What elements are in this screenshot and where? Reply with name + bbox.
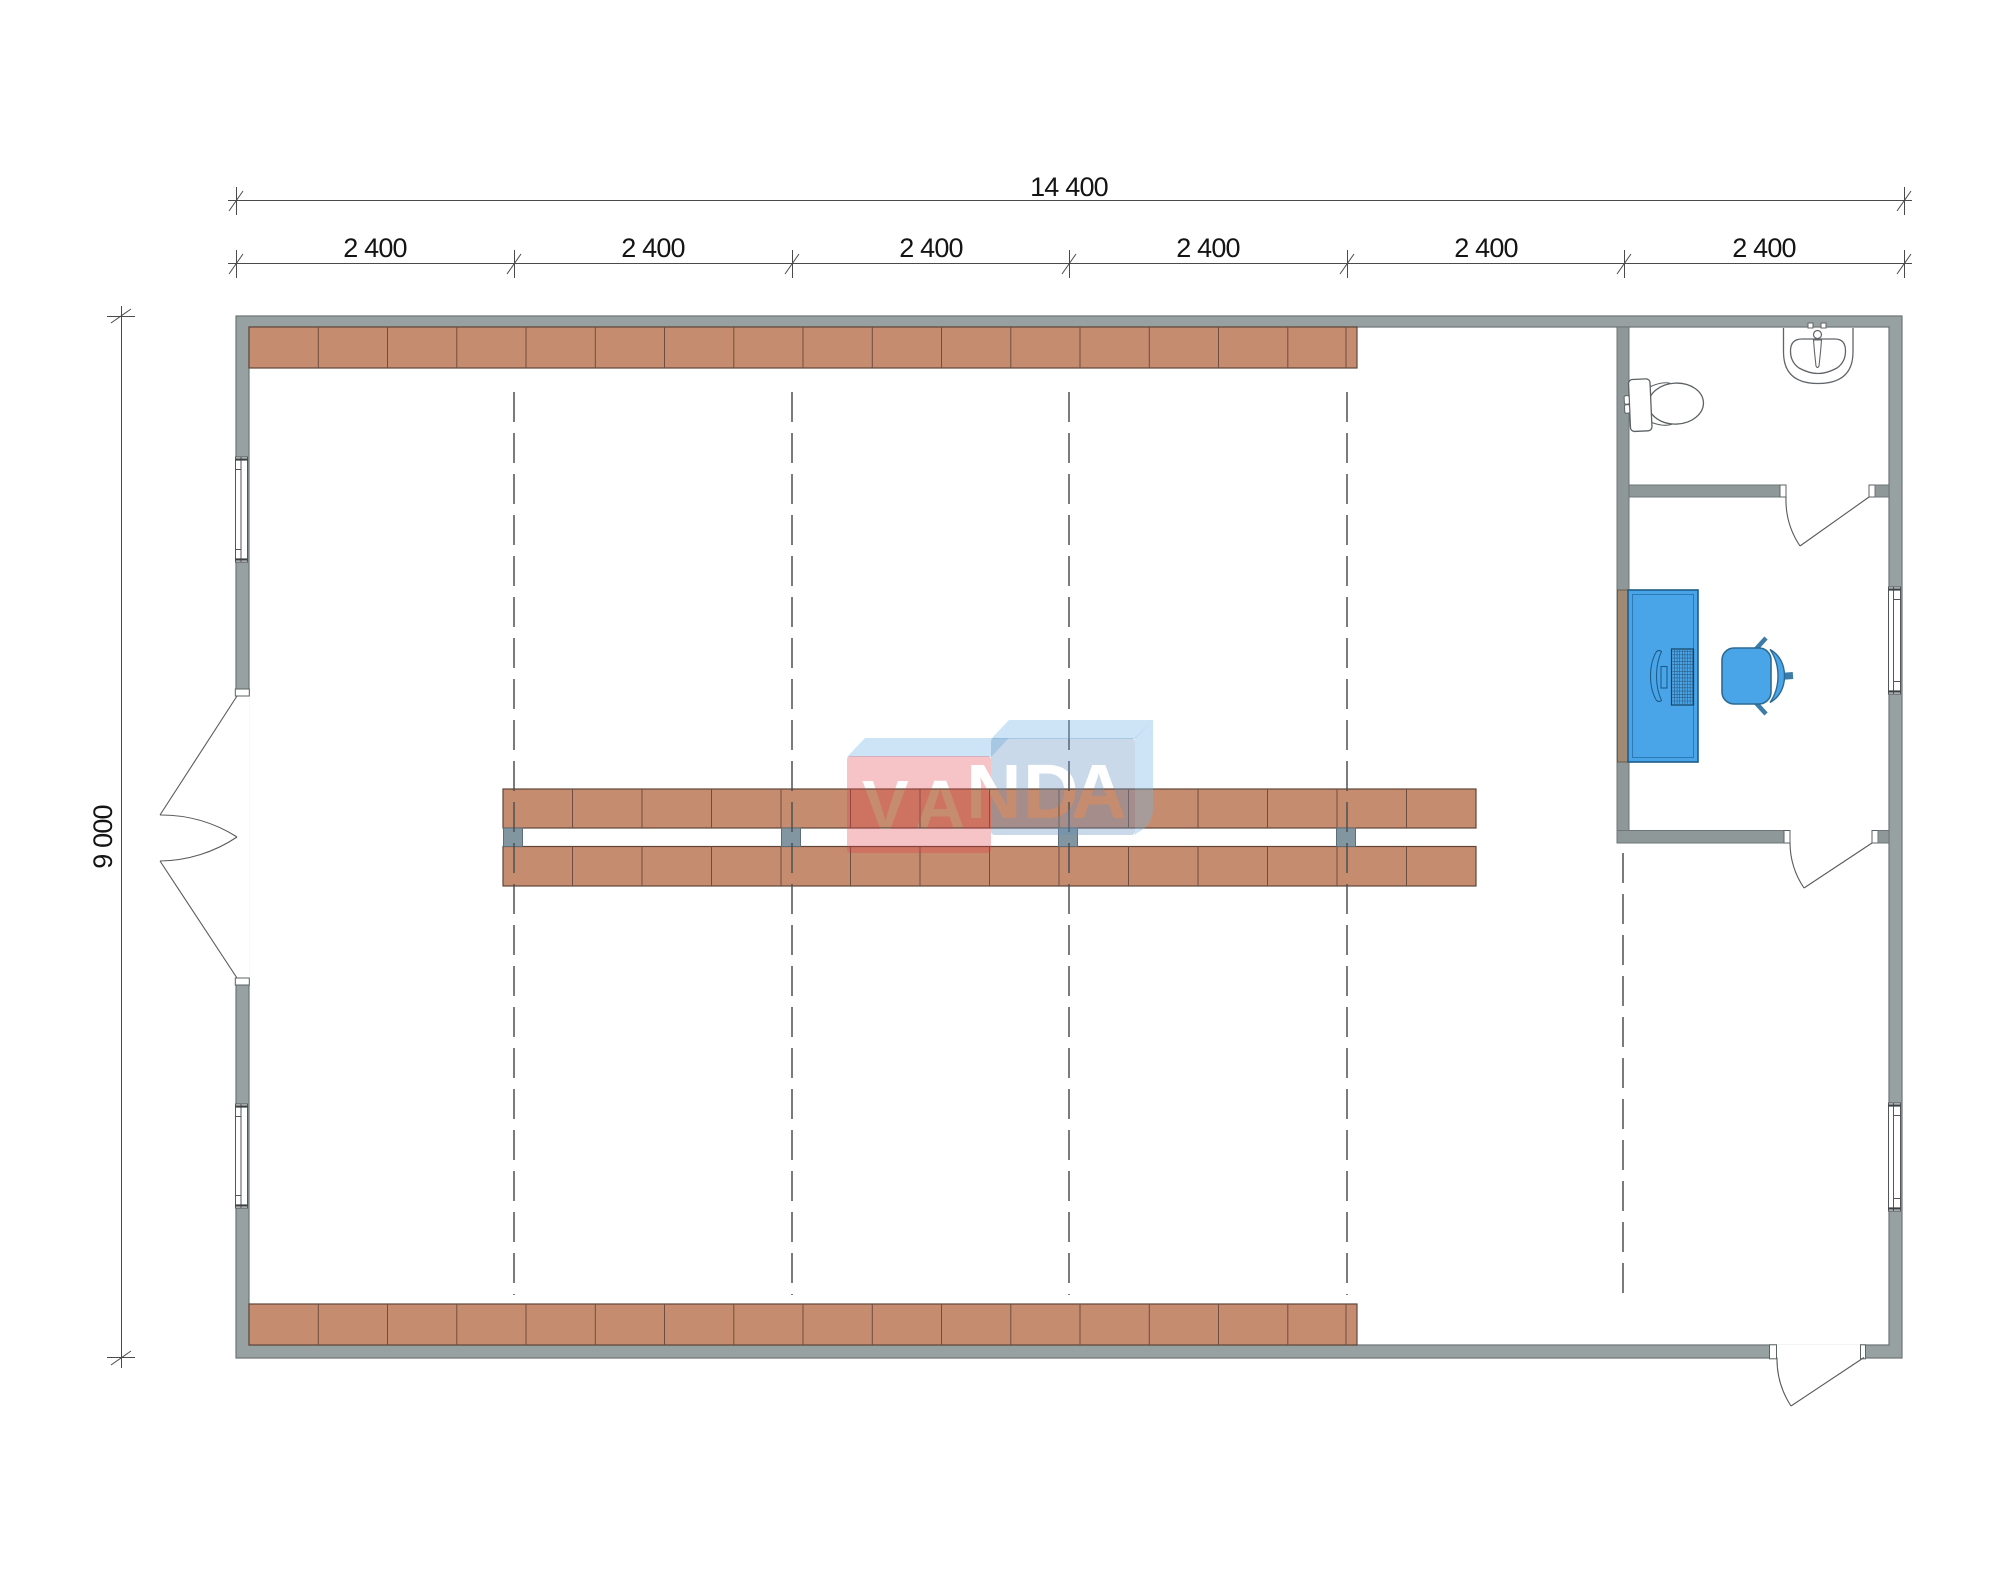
svg-text:2 400: 2 400 [1176,233,1240,263]
svg-text:2 400: 2 400 [343,233,407,263]
svg-text:14 400: 14 400 [1030,172,1108,202]
svg-text:2 400: 2 400 [1732,233,1796,263]
svg-text:2 400: 2 400 [899,233,963,263]
svg-text:9 000: 9 000 [88,805,118,869]
svg-text:2 400: 2 400 [1454,233,1518,263]
svg-text:2 400: 2 400 [621,233,685,263]
